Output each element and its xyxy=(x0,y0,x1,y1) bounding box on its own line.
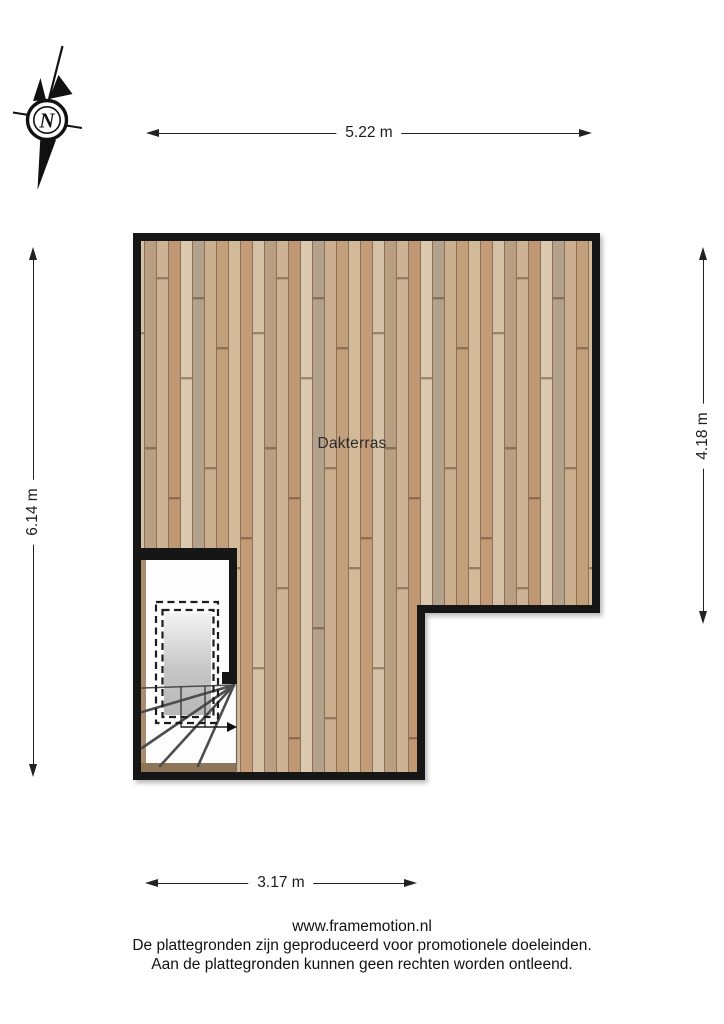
arrowhead-up-icon xyxy=(699,247,707,260)
footer-website: www.framemotion.nl xyxy=(0,917,724,936)
stairwell-bottom-curb xyxy=(141,763,237,772)
floorplan-page: N 5.22 m 6.14 m 4.18 m 3.17 m xyxy=(0,0,724,1024)
arrowhead-left-icon xyxy=(145,879,158,887)
compass-rose-icon: N xyxy=(12,40,82,195)
footer-disclaimer-line1: De plattegronden zijn geproduceerd voor … xyxy=(0,936,724,955)
footer-disclaimer-line2: Aan de plattegronden kunnen geen rechten… xyxy=(0,955,724,974)
compass-north-label: N xyxy=(38,109,55,133)
footer: www.framemotion.nl De plattegronden zijn… xyxy=(0,917,724,974)
dimension-bottom-label: 3.17 m xyxy=(248,874,313,892)
arrowhead-left-icon xyxy=(146,129,159,137)
dimension-top: 5.22 m xyxy=(146,125,592,141)
arrowhead-up-icon xyxy=(29,247,37,260)
arrowhead-right-icon xyxy=(404,879,417,887)
dimension-bottom: 3.17 m xyxy=(145,875,417,891)
floorplan-drawing xyxy=(120,220,620,800)
arrowhead-down-icon xyxy=(699,611,707,624)
dimension-left: 6.14 m xyxy=(25,247,41,777)
arrowhead-right-icon xyxy=(579,129,592,137)
stairwell-left-curb xyxy=(141,560,146,772)
compass-needle-blade xyxy=(38,135,57,190)
dimension-top-label: 5.22 m xyxy=(336,124,401,142)
dimension-right-label: 4.18 m xyxy=(694,403,712,468)
dimension-left-label: 6.14 m xyxy=(24,479,42,544)
dimension-right: 4.18 m xyxy=(695,247,711,624)
room-label: Dakterras xyxy=(318,435,387,453)
arrowhead-down-icon xyxy=(29,764,37,777)
compass-wing-left xyxy=(33,78,46,101)
